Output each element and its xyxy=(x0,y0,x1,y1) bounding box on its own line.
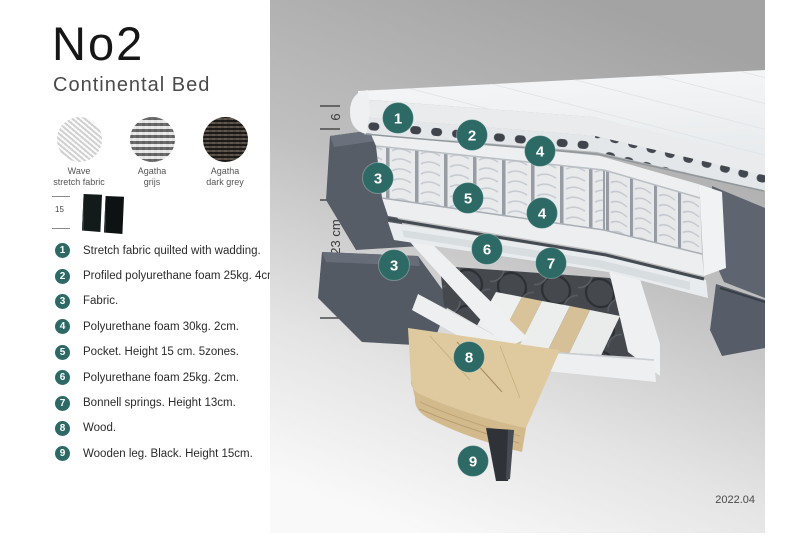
list-item: 5Pocket. Height 15 cm. 5zones. xyxy=(55,340,280,365)
leg-icon xyxy=(82,194,102,232)
legend-text: Profiled polyurethane foam 25kg. 4cm. xyxy=(83,270,280,282)
leg-height-thumbnail: 15 xyxy=(50,192,140,237)
legend-number-badge: 1 xyxy=(55,243,70,258)
leg-icon xyxy=(104,196,124,234)
legend-text: Pocket. Height 15 cm. 5zones. xyxy=(83,346,239,358)
swatch-label: stretch fabric xyxy=(53,177,105,187)
legend-text: Polyurethane foam 30kg. 2cm. xyxy=(83,321,239,333)
svg-text:2: 2 xyxy=(468,128,476,145)
marker-2: 2 xyxy=(457,120,488,151)
legend-number-badge: 4 xyxy=(55,319,70,334)
bed-cutaway-diagram: 6 19 cm 23 cm 15 cm xyxy=(270,0,765,533)
legend-text: Polyurethane foam 25kg. 2cm. xyxy=(83,372,239,384)
marker-6: 6 xyxy=(472,234,503,265)
legend-text: Stretch fabric quilted with wadding. xyxy=(83,245,261,257)
svg-text:1: 1 xyxy=(394,111,402,128)
fabric-sample-icon xyxy=(130,117,175,162)
list-item: 6Polyurethane foam 25kg. 2cm. xyxy=(55,365,280,390)
swatch-label: Wave xyxy=(68,166,91,176)
legend-number-badge: 7 xyxy=(55,396,70,411)
legend-text: Fabric. xyxy=(83,295,118,307)
list-item: 1Stretch fabric quilted with wadding. xyxy=(55,238,280,263)
swatch-wave: Wave stretch fabric xyxy=(50,117,108,188)
leg-height-label: 15 xyxy=(55,205,64,214)
swatch-label: grijs xyxy=(144,177,161,187)
svg-text:3: 3 xyxy=(374,171,382,188)
marker-3-lower: 3 xyxy=(379,250,410,281)
legend-number-badge: 5 xyxy=(55,345,70,360)
swatch-agatha-grijs: Agatha grijs xyxy=(123,117,181,188)
fabric-sample-icon xyxy=(57,117,102,162)
legend-number-badge: 6 xyxy=(55,370,70,385)
list-item: 8Wood. xyxy=(55,416,280,441)
marker-3-upper: 3 xyxy=(363,163,394,194)
ruler-label-topper: 6 xyxy=(328,113,343,120)
list-item: 3Fabric. xyxy=(55,289,280,314)
svg-text:8: 8 xyxy=(465,350,473,367)
swatch-label: dark grey xyxy=(206,177,244,187)
legend-number-badge: 8 xyxy=(55,421,70,436)
svg-text:9: 9 xyxy=(469,454,477,471)
bed-diagram-panel: 6 19 cm 23 cm 15 cm xyxy=(270,0,765,533)
svg-text:4: 4 xyxy=(536,144,545,161)
svg-text:7: 7 xyxy=(547,256,555,273)
legend-list: 1Stretch fabric quilted with wadding. 2P… xyxy=(55,238,280,467)
legend-text: Wood. xyxy=(83,422,116,434)
marker-9: 9 xyxy=(458,446,489,477)
list-item: 9Wooden leg. Black. Height 15cm. xyxy=(55,441,280,466)
marker-4-lower: 4 xyxy=(527,198,558,229)
ruler-label-box: 23 cm xyxy=(328,219,343,254)
swatch-label: Agatha xyxy=(138,166,167,176)
list-item: 2Profiled polyurethane foam 25kg. 4cm. xyxy=(55,263,280,288)
page-subtitle: Continental Bed xyxy=(53,74,210,97)
ruler-tick xyxy=(52,196,70,197)
fabric-sample-icon xyxy=(203,117,248,162)
list-item: 7Bonnell springs. Height 13cm. xyxy=(55,390,280,415)
svg-text:6: 6 xyxy=(483,242,491,259)
version-date: 2022.04 xyxy=(715,494,755,506)
legend-number-badge: 9 xyxy=(55,446,70,461)
ruler-tick xyxy=(52,228,70,229)
svg-text:4: 4 xyxy=(538,206,547,223)
info-panel: No2 Continental Bed Wave stretch fabric … xyxy=(0,0,270,533)
marker-4-upper: 4 xyxy=(525,136,556,167)
legend-number-badge: 2 xyxy=(55,269,70,284)
list-item: 4Polyurethane foam 30kg. 2cm. xyxy=(55,314,280,339)
marker-7: 7 xyxy=(536,248,567,279)
swatch-agatha-dark: Agatha dark grey xyxy=(196,117,254,188)
swatch-label: Agatha xyxy=(211,166,240,176)
fabric-swatches: Wave stretch fabric Agatha grijs Agatha … xyxy=(50,117,254,188)
legend-text: Bonnell springs. Height 13cm. xyxy=(83,397,236,409)
marker-5: 5 xyxy=(453,183,484,214)
legend-number-badge: 3 xyxy=(55,294,70,309)
svg-text:3: 3 xyxy=(390,258,398,275)
legend-text: Wooden leg. Black. Height 15cm. xyxy=(83,448,253,460)
svg-text:5: 5 xyxy=(464,191,472,208)
page-title: No2 xyxy=(52,16,144,71)
marker-1: 1 xyxy=(383,103,414,134)
marker-8: 8 xyxy=(454,342,485,373)
